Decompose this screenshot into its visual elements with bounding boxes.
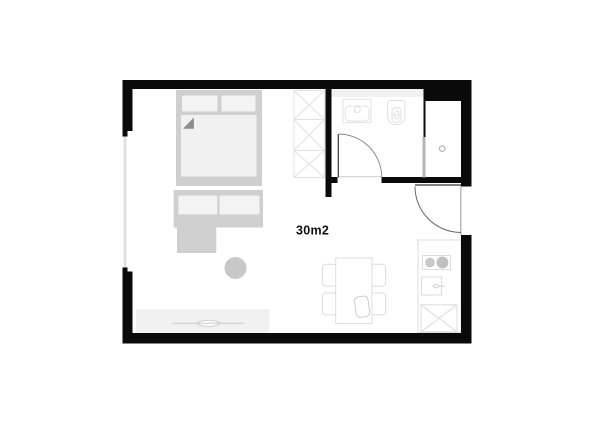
svg-text:30m2: 30m2 — [296, 224, 329, 238]
